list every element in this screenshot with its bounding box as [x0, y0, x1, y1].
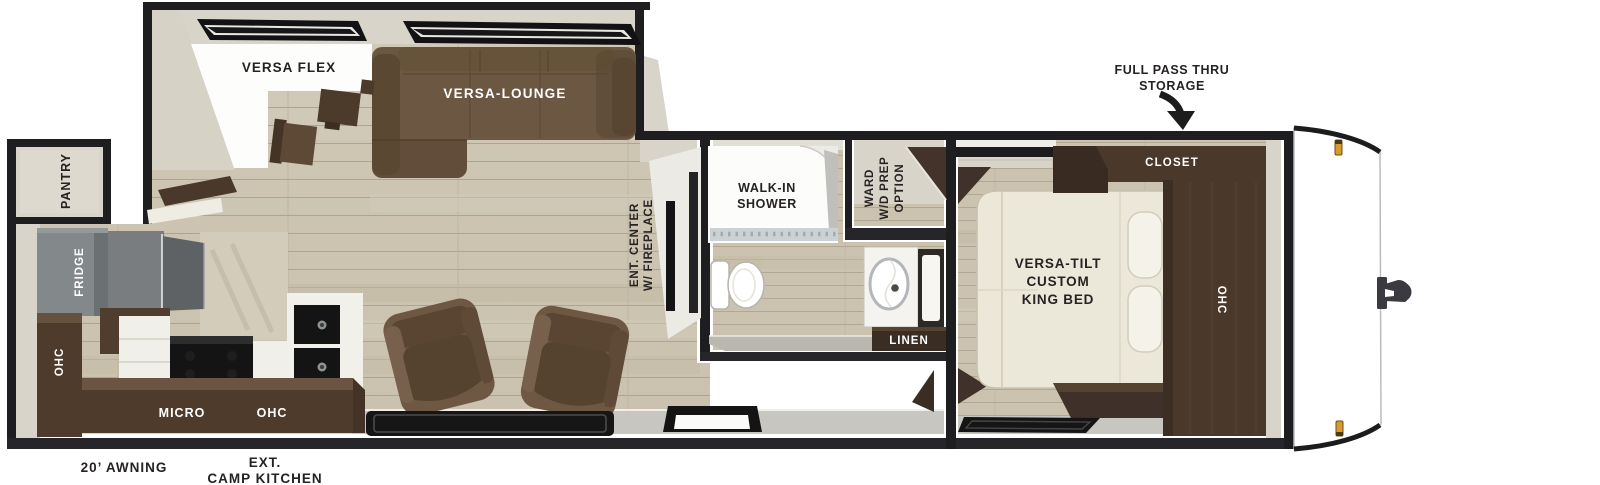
svg-text:OHC: OHC: [1215, 286, 1227, 315]
svg-text:OPTION: OPTION: [894, 164, 906, 213]
svg-text:EXT.: EXT.: [249, 455, 282, 470]
svg-text:VERSA-LOUNGE: VERSA-LOUNGE: [443, 86, 566, 101]
svg-text:CAMP KITCHEN: CAMP KITCHEN: [207, 471, 322, 485]
svg-text:FULL PASS THRU: FULL PASS THRU: [1115, 63, 1230, 77]
svg-text:OHC: OHC: [257, 406, 288, 420]
svg-text:MICRO: MICRO: [159, 406, 206, 420]
svg-text:PANTRY: PANTRY: [59, 153, 73, 209]
svg-text:W/D PREP: W/D PREP: [879, 156, 891, 219]
svg-text:KING BED: KING BED: [1022, 292, 1094, 307]
svg-text:SHOWER: SHOWER: [737, 197, 797, 211]
svg-text:WALK-IN: WALK-IN: [738, 181, 796, 195]
svg-text:WARD: WARD: [864, 169, 876, 207]
svg-text:ENT. CENTER: ENT. CENTER: [629, 203, 641, 287]
svg-text:STORAGE: STORAGE: [1139, 79, 1205, 93]
svg-text:VERSA FLEX: VERSA FLEX: [242, 60, 336, 75]
svg-text:W/ FIREPLACE: W/ FIREPLACE: [643, 199, 655, 291]
svg-text:CLOSET: CLOSET: [1145, 157, 1199, 169]
svg-text:20’ AWNING: 20’ AWNING: [81, 460, 168, 475]
svg-text:LINEN: LINEN: [889, 335, 929, 347]
svg-text:OHC: OHC: [54, 348, 66, 377]
svg-text:VERSA-TILT: VERSA-TILT: [1015, 256, 1102, 271]
svg-text:CUSTOM: CUSTOM: [1026, 274, 1089, 289]
svg-text:FRIDGE: FRIDGE: [74, 247, 86, 296]
